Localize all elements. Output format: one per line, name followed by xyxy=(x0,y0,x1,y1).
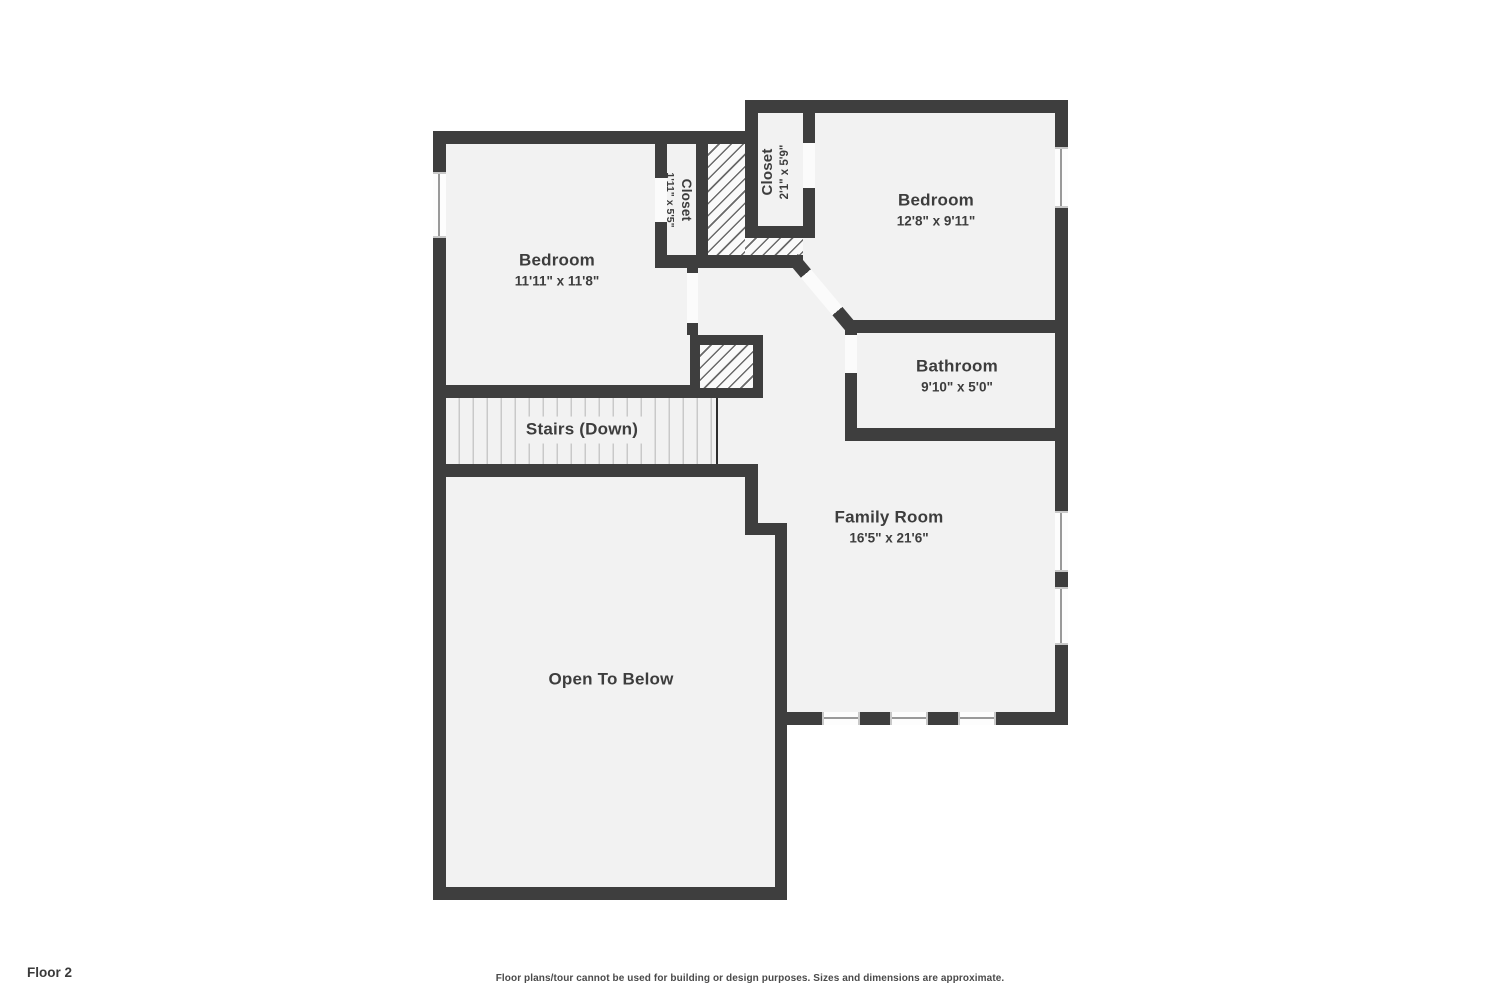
room-label-stairs: Stairs (Down) xyxy=(518,417,646,444)
window-marker xyxy=(1055,511,1068,572)
door-opening xyxy=(803,143,815,188)
wall-segment xyxy=(845,320,1068,333)
hatched-area-upper-extension xyxy=(745,238,803,255)
wall-segment xyxy=(433,131,758,144)
room-label-bedroom-1: Bedroom 11'11" x 11'8" xyxy=(515,249,600,290)
room-name: Bedroom xyxy=(897,189,976,212)
window-marker xyxy=(822,712,860,725)
wall-segment xyxy=(433,464,758,477)
room-label-family-room: Family Room 16'5" x 21'6" xyxy=(835,506,944,547)
window-marker xyxy=(433,172,446,238)
hatched-area-shaft xyxy=(700,345,753,388)
wall-segment xyxy=(433,131,446,900)
wall-segment xyxy=(433,385,690,398)
door-opening xyxy=(845,335,857,373)
room-dimensions: 1'11" x 5'5" xyxy=(663,172,677,227)
stairs-edge-line xyxy=(716,398,718,464)
room-dimensions: 2'1" x 5'9" xyxy=(778,145,794,200)
room-name: Closet xyxy=(677,172,695,227)
wall-segment xyxy=(845,428,1068,441)
room-dimensions: 9'10" x 5'0" xyxy=(916,378,998,396)
door-opening xyxy=(687,273,698,323)
room-name: Open To Below xyxy=(548,669,673,692)
room-dimensions: 11'11" x 11'8" xyxy=(515,272,600,290)
room-label-bathroom: Bathroom 9'10" x 5'0" xyxy=(916,355,998,396)
room-name: Family Room xyxy=(835,506,944,529)
room-name: Bedroom xyxy=(515,249,600,272)
room-label-open-to-below: Open To Below xyxy=(548,669,673,692)
window-marker xyxy=(1055,147,1068,208)
window-marker xyxy=(890,712,928,725)
wall-segment xyxy=(687,323,698,335)
floor-plan-canvas: Bedroom 11'11" x 11'8" Bedroom 12'8" x 9… xyxy=(0,0,1500,1000)
room-name: Stairs (Down) xyxy=(526,419,638,442)
room-label-bedroom-2: Bedroom 12'8" x 9'11" xyxy=(897,189,976,230)
room-name: Bathroom xyxy=(916,355,998,378)
room-dimensions: 12'8" x 9'11" xyxy=(897,212,976,230)
room-name: Closet xyxy=(758,145,778,200)
wall-segment xyxy=(745,226,815,238)
wall-segment xyxy=(745,100,1068,113)
room-label-closet-2: Closet 2'1" x 5'9" xyxy=(758,145,794,200)
wall-segment xyxy=(687,263,698,273)
wall-segment xyxy=(696,144,708,255)
window-marker xyxy=(1055,587,1068,645)
room-label-closet-1: Closet 1'11" x 5'5" xyxy=(663,172,695,227)
wall-segment xyxy=(655,255,803,268)
disclaimer-text: Floor plans/tour cannot be used for buil… xyxy=(0,973,1500,984)
room-dimensions: 16'5" x 21'6" xyxy=(835,529,944,547)
window-marker xyxy=(958,712,996,725)
wall-segment xyxy=(433,887,787,900)
hatched-area-upper xyxy=(708,144,745,255)
wall-segment xyxy=(775,523,787,900)
wall-segment xyxy=(745,100,758,238)
